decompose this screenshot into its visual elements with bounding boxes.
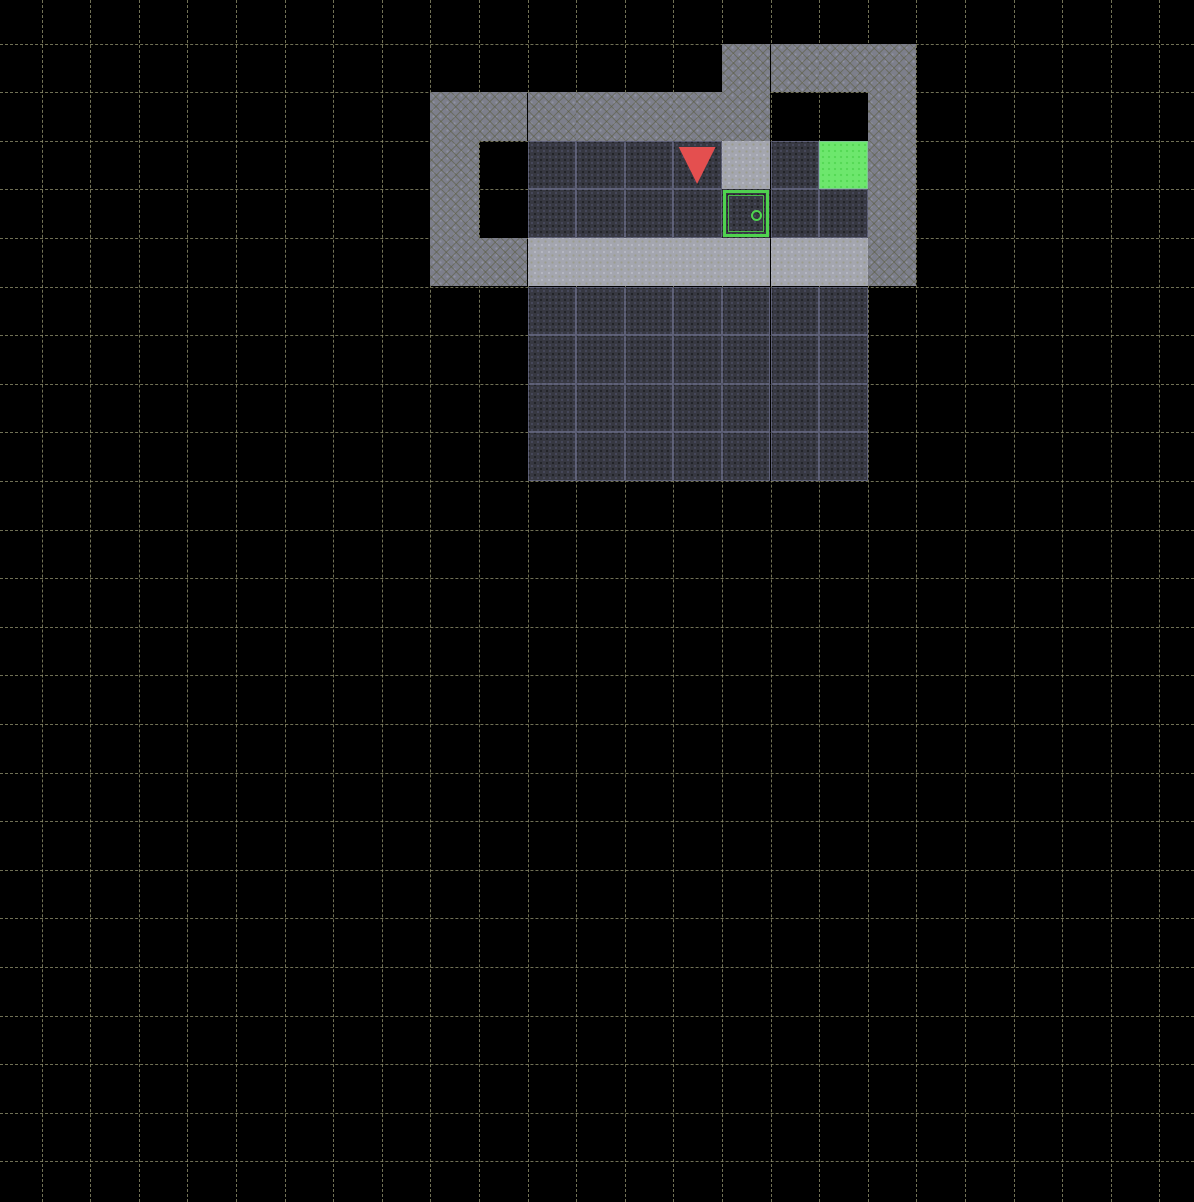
floor-cell [528,287,577,336]
wall-cell [479,92,528,141]
wall-cell [430,238,479,287]
door-handle-icon [751,210,762,221]
wall-cell [722,92,771,141]
wall-cell [430,189,479,238]
wall-cell [868,92,917,141]
floor-cell [771,432,820,481]
agent-triangle-icon [673,141,722,190]
wall-cell [722,44,771,93]
highlight-cell [722,238,771,287]
wall-cell [868,141,917,190]
wall-cell [430,141,479,190]
scene-layer [0,0,1194,1202]
highlight-cell [673,238,722,287]
floor-cell [576,189,625,238]
wall-cell [771,44,820,93]
highlight-cell [771,238,820,287]
floor-cell [673,432,722,481]
gridworld-viewport[interactable] [0,0,1194,1202]
highlight-cell [819,238,868,287]
floor-cell [528,384,577,433]
floor-cell [771,335,820,384]
highlight-cell [625,238,674,287]
floor-cell [528,189,577,238]
floor-cell [722,384,771,433]
floor-cell [673,335,722,384]
floor-cell [528,335,577,384]
floor-cell [819,432,868,481]
highlight-cell [528,238,577,287]
agent-marker [673,141,722,190]
floor-cell [722,432,771,481]
wall-cell [868,238,917,287]
wall-cell [430,92,479,141]
floor-cell [771,189,820,238]
floor-cell [576,335,625,384]
floor-cell [771,287,820,336]
floor-cell [819,335,868,384]
wall-cell [868,189,917,238]
floor-cell [576,432,625,481]
floor-cell [673,189,722,238]
floor-cell [625,287,674,336]
floor-cell [819,189,868,238]
floor-cell [576,287,625,336]
floor-cell [722,335,771,384]
wall-cell [528,92,577,141]
floor-cell [528,432,577,481]
door-closed [722,189,771,238]
floor-cell [819,384,868,433]
goal-cell [819,141,868,190]
floor-cell [576,141,625,190]
floor-cell [673,287,722,336]
floor-cell [625,335,674,384]
wall-cell [625,92,674,141]
floor-cell [771,141,820,190]
floor-cell [819,287,868,336]
wall-cell [819,44,868,93]
wall-cell [673,92,722,141]
floor-cell [576,384,625,433]
floor-cell [625,432,674,481]
floor-cell [771,384,820,433]
floor-cell [673,384,722,433]
floor-cell [722,287,771,336]
floor-cell [625,141,674,190]
wall-cell [868,44,917,93]
highlight-cell [722,141,771,190]
wall-cell [479,238,528,287]
floor-cell [528,141,577,190]
wall-cell [576,92,625,141]
floor-cell [625,189,674,238]
highlight-cell [576,238,625,287]
floor-cell [625,384,674,433]
